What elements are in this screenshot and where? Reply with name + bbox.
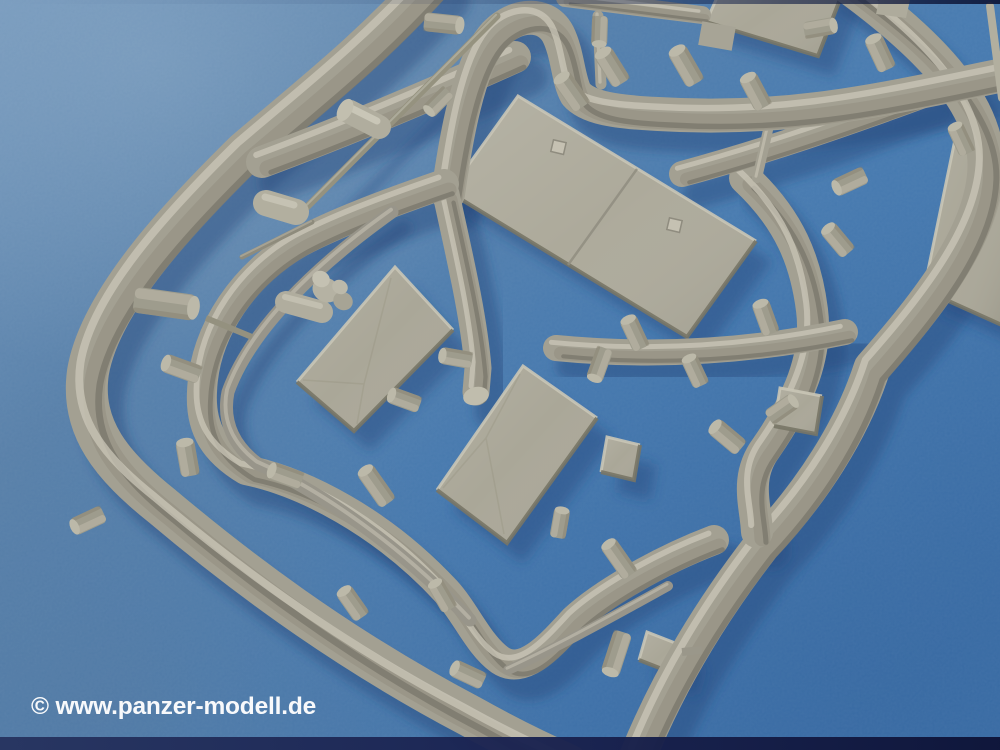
svg-text:© www.panzer-modell.de: © www.panzer-modell.de	[31, 693, 316, 720]
